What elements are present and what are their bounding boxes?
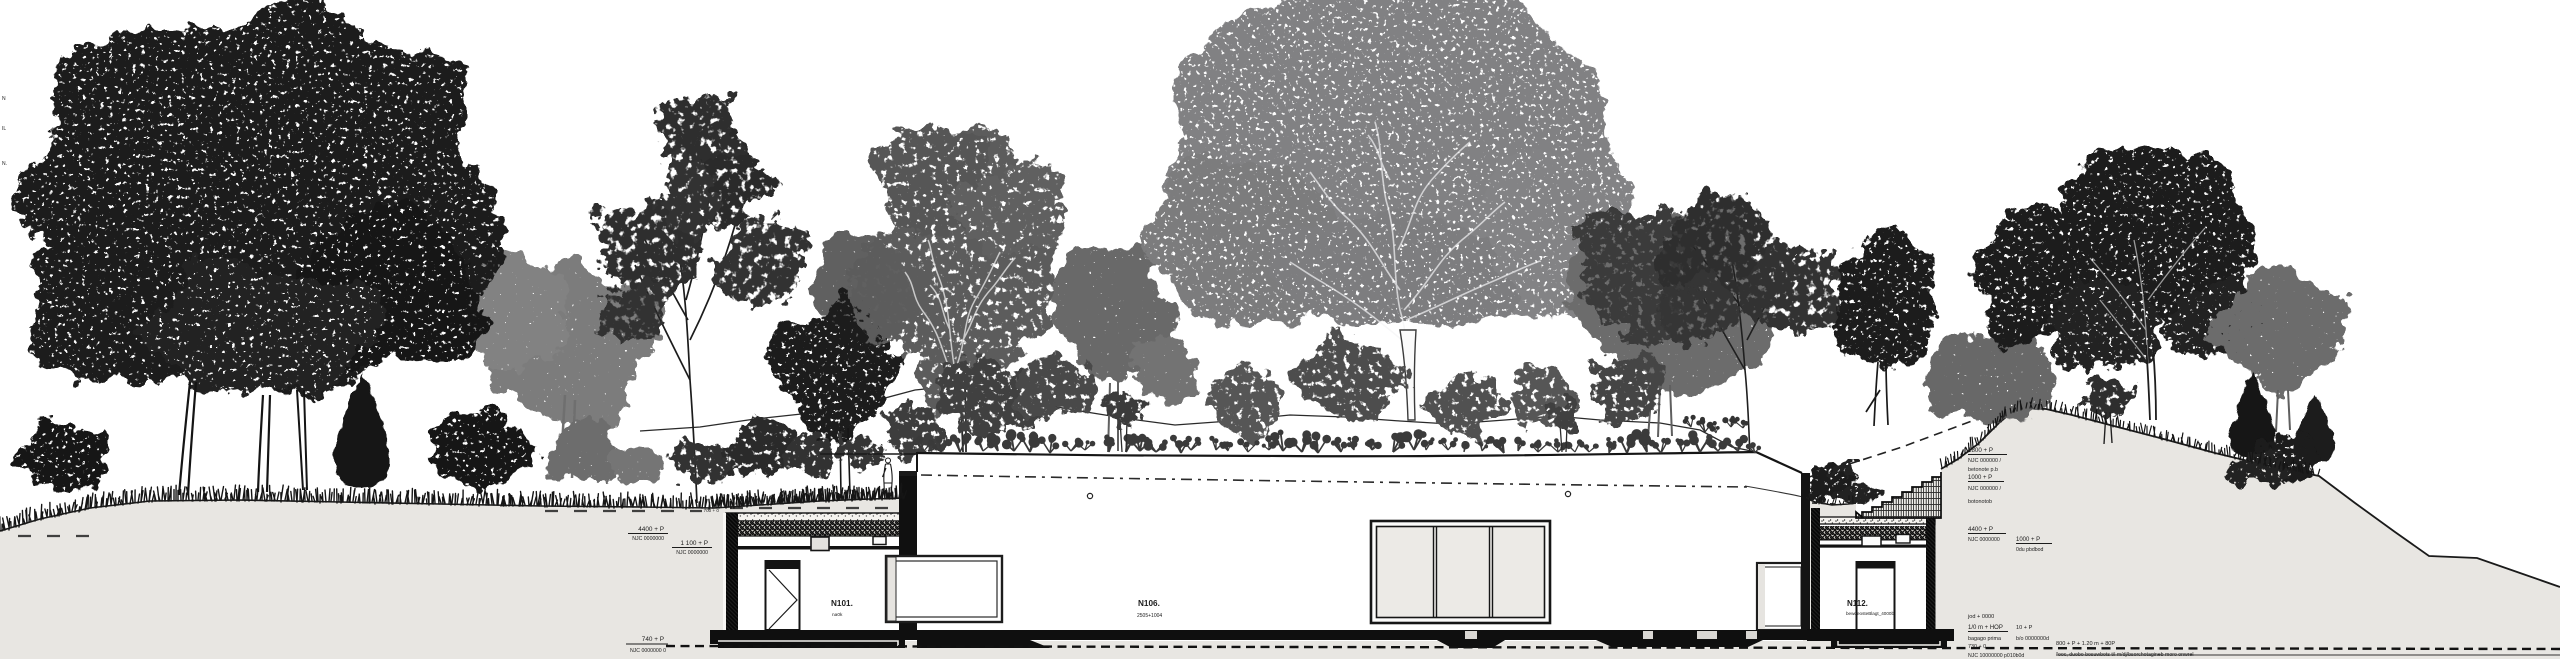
svg-text:0du pbdbod: 0du pbdbod xyxy=(2016,547,2044,553)
svg-text:NJC 0000000: NJC 0000000 xyxy=(1968,537,2000,543)
svg-text:N: N xyxy=(2,96,6,102)
svg-text:730 + 0: 730 + 0 xyxy=(1968,644,1986,650)
svg-text:b/o 0000000d: b/o 0000000d xyxy=(2016,636,2049,642)
svg-text:IL: IL xyxy=(2,126,6,132)
svg-text:4400 + P: 4400 + P xyxy=(1968,526,1993,533)
svg-text:N106.: N106. xyxy=(1138,599,1160,608)
svg-text:NJC 10000000 p010b0d: NJC 10000000 p010b0d xyxy=(1968,653,2024,659)
svg-text:bagago prima: bagago prima xyxy=(1968,636,2001,642)
svg-text:1000 + P: 1000 + P xyxy=(2016,537,2040,543)
svg-text:*ooc, duobo bosuwbots t/i m/dj: *ooc, duobo bosuwbots t/i m/dj/bsorchota… xyxy=(2056,652,2194,658)
svg-text:NJC 0000000 0: NJC 0000000 0 xyxy=(630,648,666,654)
svg-text:jod + 0000: jod + 0000 xyxy=(1967,614,1994,620)
svg-text:1/0 m + HOP: 1/0 m + HOP xyxy=(1968,625,2003,631)
svg-text:N.: N. xyxy=(2,161,7,167)
svg-text:2505+1004: 2505+1004 xyxy=(1137,613,1162,619)
svg-text:10 + P: 10 + P xyxy=(2016,625,2033,631)
svg-text:700 + 0: 700 + 0 xyxy=(704,508,720,513)
svg-text:740 + P: 740 + P xyxy=(642,636,664,643)
svg-text:1 100 + P: 1 100 + P xyxy=(680,540,708,547)
svg-text:800 + P + 1.20 m + 80P: 800 + P + 1.20 m + 80P xyxy=(2056,641,2115,647)
svg-text:NJC 0000000: NJC 0000000 xyxy=(632,536,664,542)
svg-text:1000 + P: 1000 + P xyxy=(1968,475,1992,481)
svg-text:NJC 0000000: NJC 0000000 xyxy=(676,550,708,556)
svg-text:4400 + P: 4400 + P xyxy=(638,526,664,533)
svg-text:1800 + P: 1800 + P xyxy=(1968,447,1993,454)
svg-text:na0k: na0k xyxy=(832,612,843,618)
svg-text:botonotob: botonotob xyxy=(1968,499,1992,505)
svg-text:N112.: N112. xyxy=(1847,599,1868,608)
svg-text:bewdeosteBlagt_4000b: bewdeosteBlagt_4000b xyxy=(1846,611,1894,616)
svg-text:NJC 000000 /: NJC 000000 / xyxy=(1968,458,2001,464)
svg-text:betonote p.b: betonote p.b xyxy=(1968,467,1998,473)
svg-text:NJC 000000 /: NJC 000000 / xyxy=(1968,486,2001,492)
svg-text:N101.: N101. xyxy=(831,599,853,608)
